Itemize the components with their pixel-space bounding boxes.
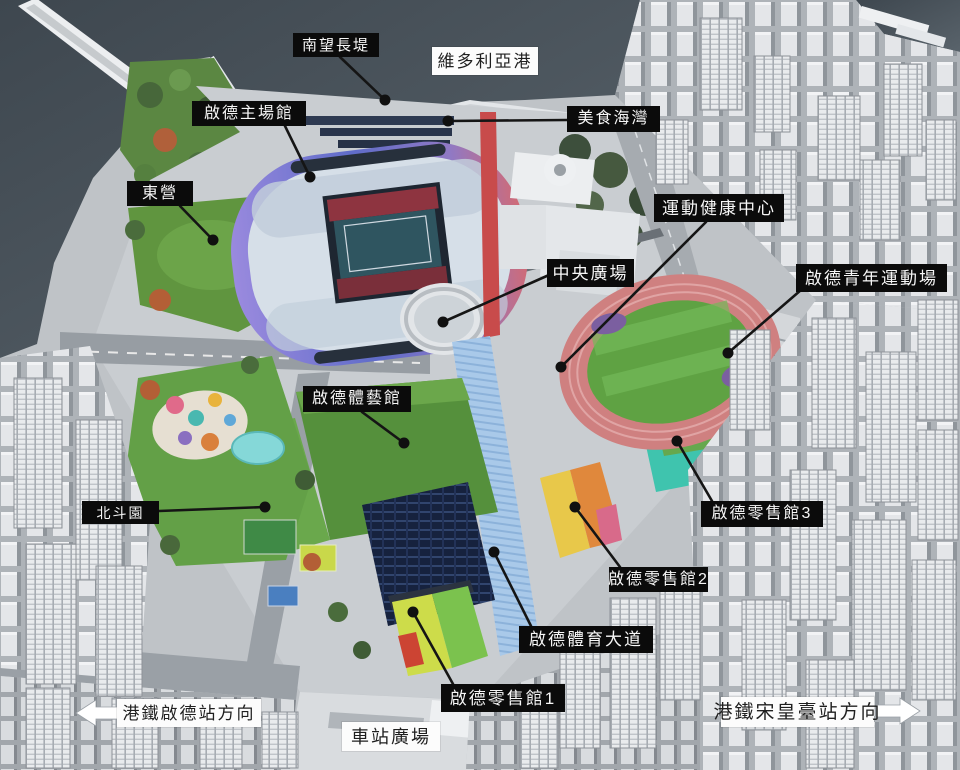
- label-retail-hall-3: 啟德零售館3: [701, 501, 823, 527]
- label-north-plaza: 北斗園: [82, 501, 159, 524]
- label-sports-avenue: 啟德體育大道: [519, 626, 653, 653]
- label-victoria-harbour: 維多利亞港: [432, 47, 538, 75]
- label-mtr-kai-tak-direction: 港鐵啟德站方向: [117, 699, 261, 727]
- label-mtr-sung-wong-toi-direction: 港鐵宋皇臺站方向: [721, 697, 874, 727]
- label-south-breakwater: 南望長堤: [293, 33, 379, 57]
- label-east-lawn: 東營: [127, 181, 193, 206]
- label-food-bay: 美食海灣: [567, 106, 660, 132]
- labels-layer: 南望長堤維多利亞港啟德主場館美食海灣東營運動健康中心中央廣場啟德青年運動場啟德體…: [0, 0, 960, 770]
- label-central-square: 中央廣場: [547, 259, 634, 287]
- label-sports-health-centre: 運動健康中心: [654, 194, 784, 222]
- kai-tak-sports-park-aerial-map: 南望長堤維多利亞港啟德主場館美食海灣東營運動健康中心中央廣場啟德青年運動場啟德體…: [0, 0, 960, 770]
- label-youth-sports-ground: 啟德青年運動場: [796, 264, 947, 292]
- label-retail-hall-2: 啟德零售館2: [609, 567, 708, 592]
- label-retail-hall-1: 啟德零售館1: [441, 684, 565, 712]
- label-indoor-sports-centre: 啟德體藝館: [303, 386, 411, 412]
- label-kai-tak-main-stadium: 啟德主場館: [192, 101, 306, 126]
- label-station-square: 車站廣場: [342, 722, 440, 751]
